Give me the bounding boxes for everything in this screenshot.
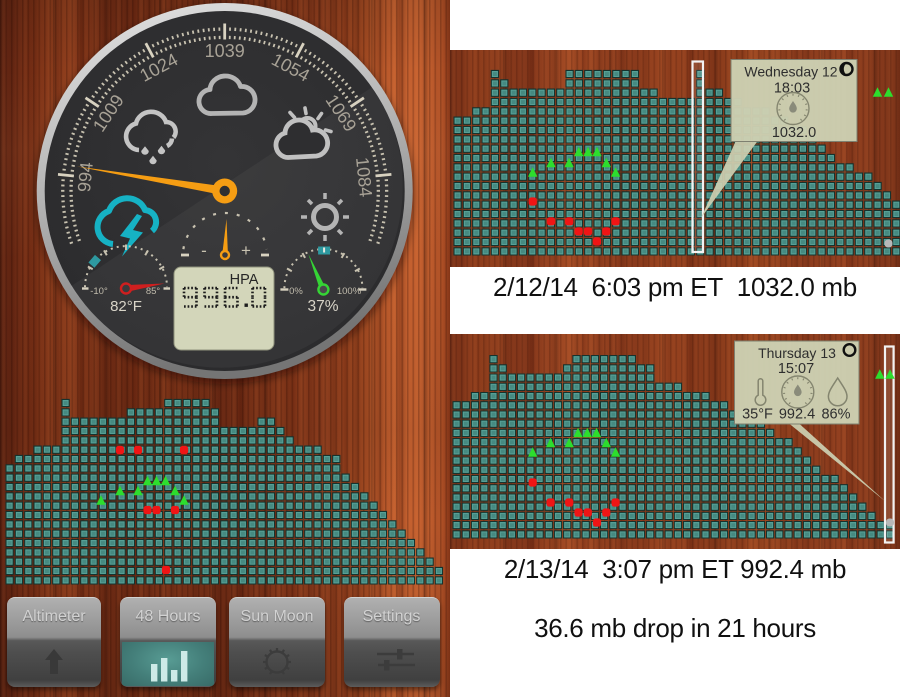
svg-text:1032.0: 1032.0 bbox=[772, 125, 816, 141]
svg-text:85°: 85° bbox=[146, 286, 161, 297]
svg-text:15:07: 15:07 bbox=[778, 361, 814, 377]
svg-text:-: - bbox=[201, 241, 207, 260]
svg-text:1084: 1084 bbox=[352, 156, 376, 198]
svg-text:86%: 86% bbox=[821, 407, 850, 423]
svg-text:18:03: 18:03 bbox=[774, 81, 810, 97]
svg-text:100%: 100% bbox=[337, 286, 362, 297]
svg-text:+: + bbox=[241, 241, 251, 260]
svg-text:-10°: -10° bbox=[90, 286, 108, 297]
svg-text:82°F: 82°F bbox=[110, 298, 142, 315]
svg-text:Wednesday 12: Wednesday 12 bbox=[744, 64, 837, 80]
svg-text:37%: 37% bbox=[307, 298, 338, 315]
svg-text:Thursday 13: Thursday 13 bbox=[758, 345, 836, 361]
svg-text:0%: 0% bbox=[289, 286, 303, 297]
svg-text:35°F: 35°F bbox=[742, 407, 773, 423]
svg-text:HPA: HPA bbox=[230, 272, 259, 288]
svg-text:992.4: 992.4 bbox=[779, 407, 815, 423]
svg-text:994: 994 bbox=[74, 161, 97, 193]
svg-text:1039: 1039 bbox=[205, 41, 245, 61]
